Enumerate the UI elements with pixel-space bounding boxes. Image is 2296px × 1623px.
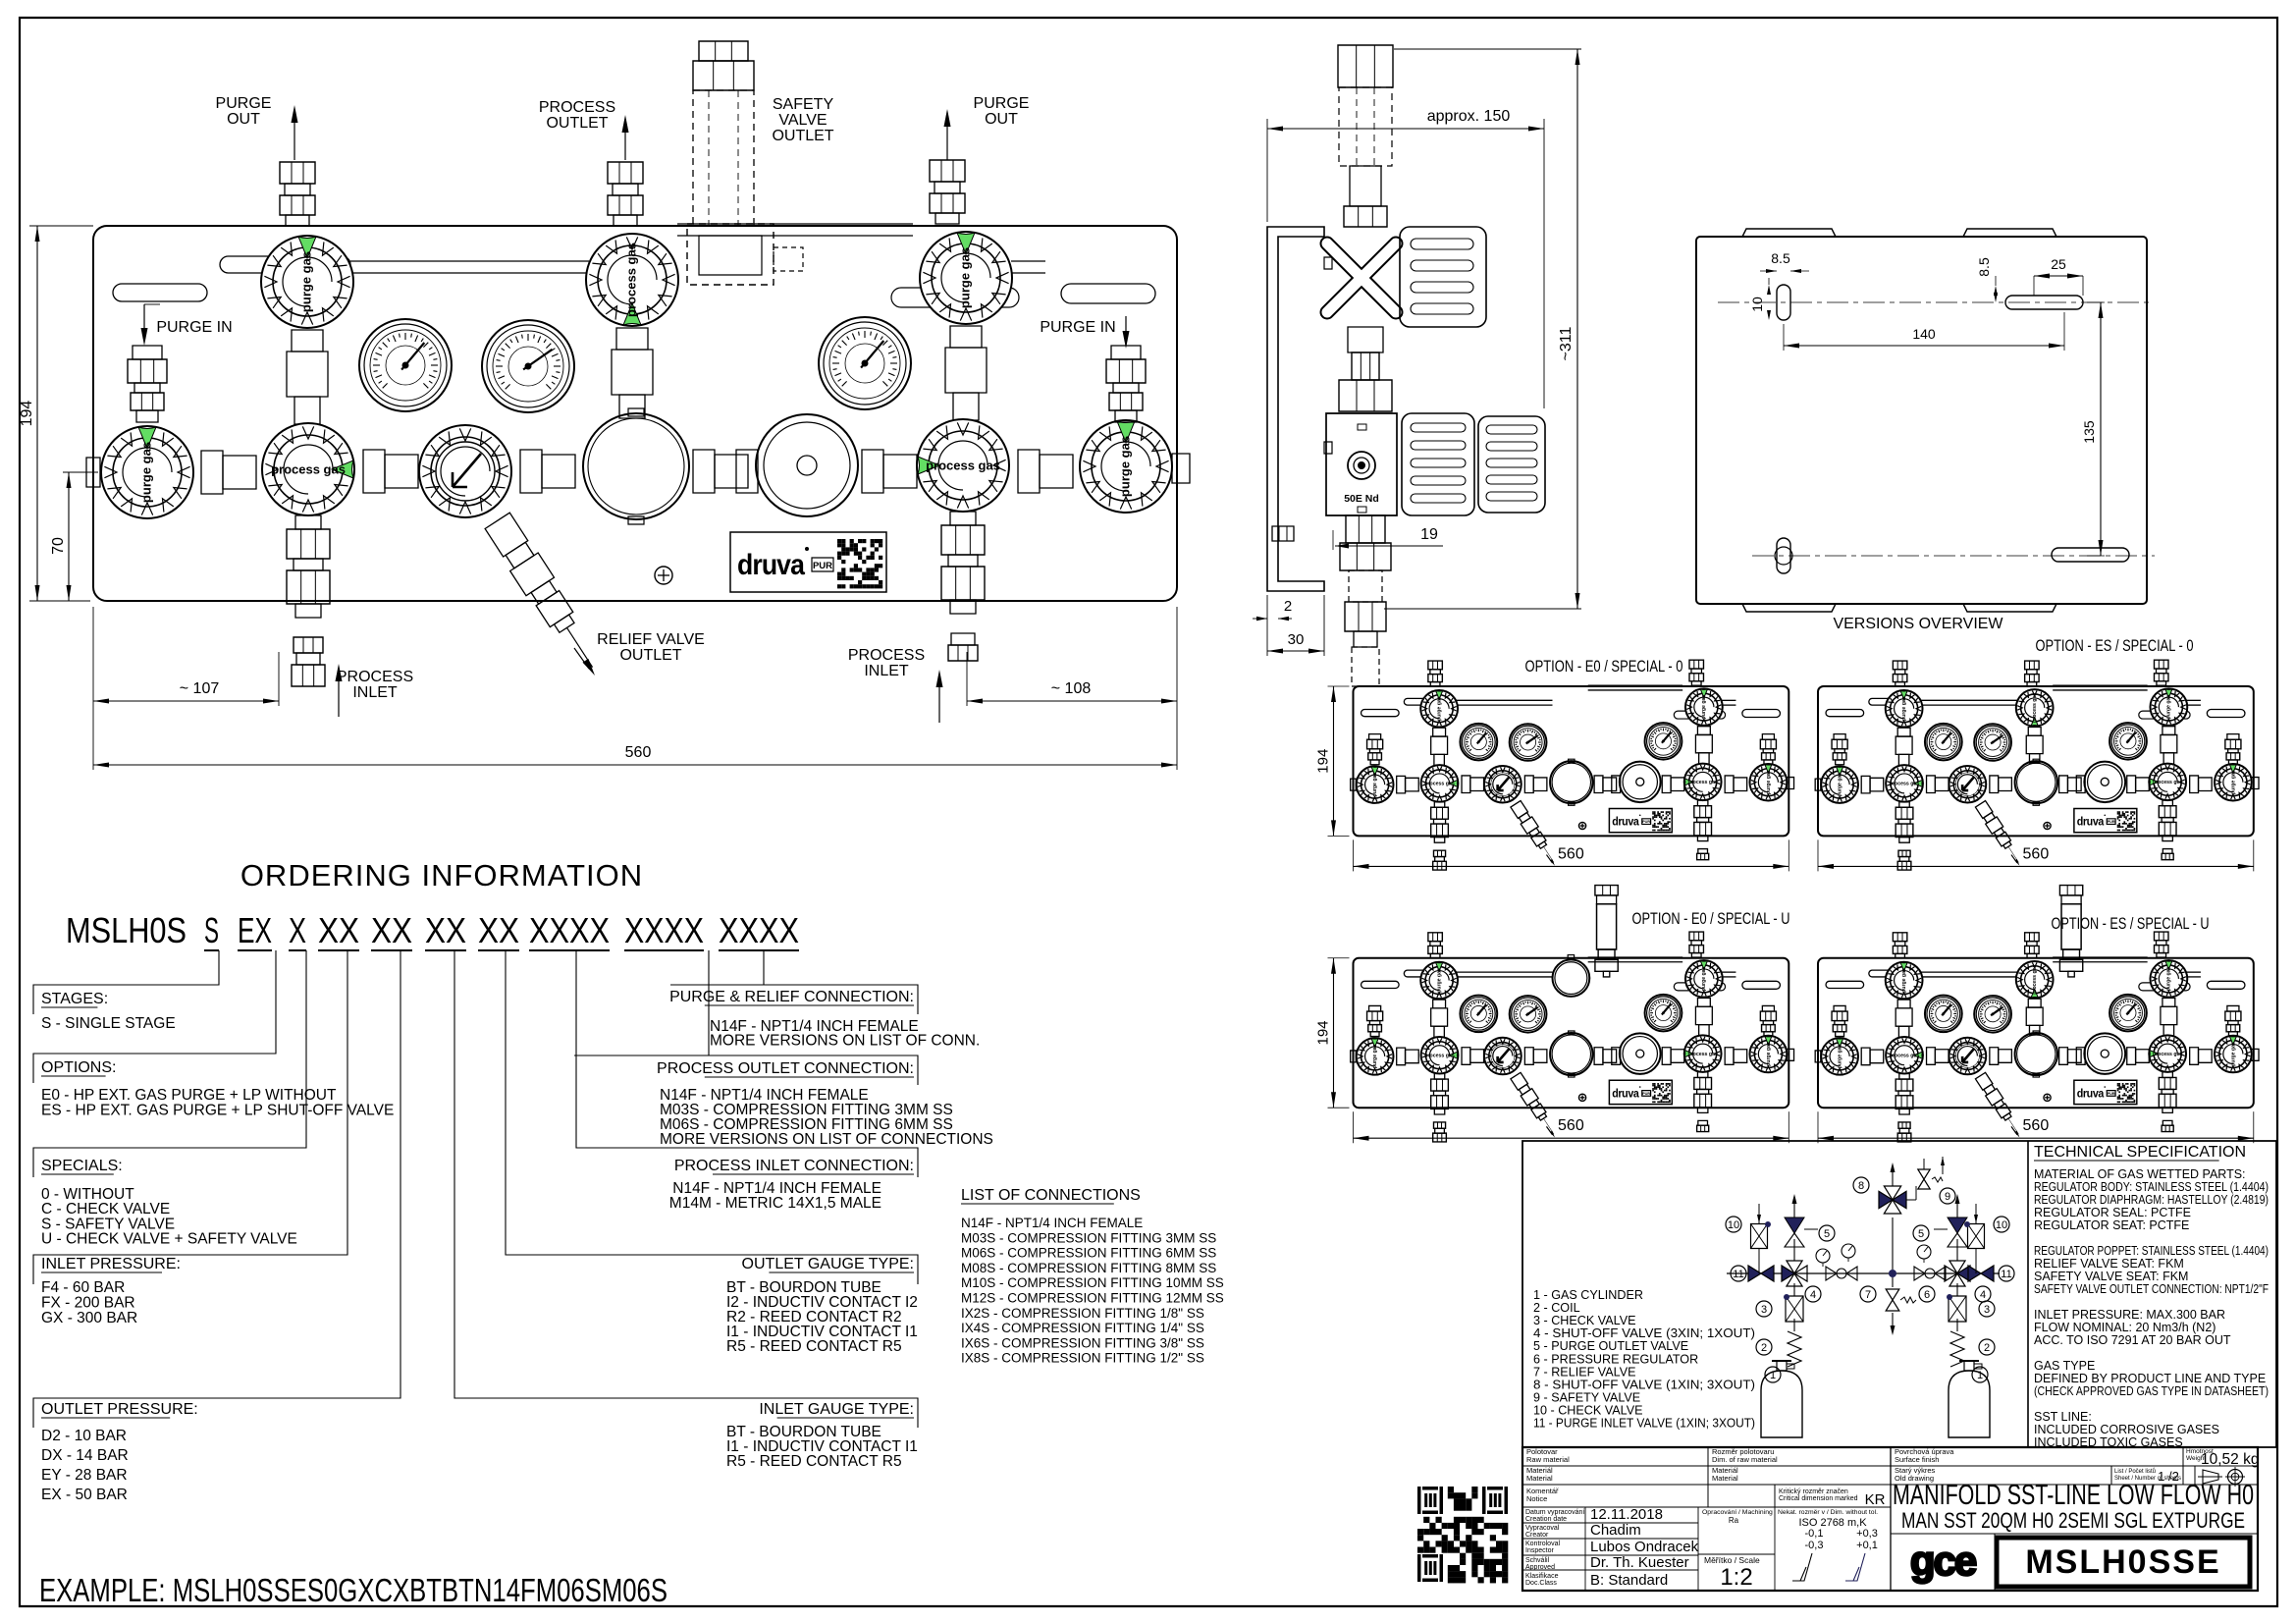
- svg-text:7: 7: [1865, 1289, 1871, 1301]
- svg-text:11: 11: [1733, 1269, 1743, 1280]
- svg-text:PURGE: PURGE: [974, 95, 1030, 112]
- svg-text:ORDERING INFORMATION: ORDERING INFORMATION: [240, 858, 643, 893]
- svg-text:OPTIONS:: OPTIONS:: [41, 1059, 116, 1076]
- svg-text:OUT: OUT: [227, 111, 260, 128]
- svg-text:3: 3: [1761, 1304, 1767, 1316]
- svg-text:Klasifikace: Klasifikace: [1525, 1573, 1559, 1580]
- svg-text:PROCESS INLET CONNECTION:: PROCESS INLET CONNECTION:: [674, 1158, 914, 1174]
- svg-text:ACC. TO ISO 7291 AT 20 BAR OUT: ACC. TO ISO 7291 AT 20 BAR OUT: [2034, 1333, 2231, 1347]
- svg-text:purge gas: purge gas: [298, 251, 313, 312]
- svg-text:4 - SHUT-OFF VALVE (3XIN; 1XOU: 4 - SHUT-OFF VALVE (3XIN; 1XOUT): [1533, 1326, 1755, 1340]
- svg-text:U - CHECK VALVE + SAFETY VALVE: U - CHECK VALVE + SAFETY VALVE: [41, 1231, 297, 1248]
- svg-text:(CHECK APPROVED GAS TYPE IN DA: (CHECK APPROVED GAS TYPE IN DATASHEET): [2034, 1384, 2269, 1398]
- svg-text:PURGE IN: PURGE IN: [156, 319, 232, 336]
- svg-text:Raw material: Raw material: [1526, 1455, 1570, 1464]
- svg-text:DX - 14 BAR: DX - 14 BAR: [41, 1447, 129, 1464]
- svg-text:30: 30: [1288, 631, 1305, 648]
- svg-text:EX: EX: [238, 910, 272, 950]
- svg-text:Notice: Notice: [1526, 1494, 1547, 1503]
- svg-text:OUTLET PRESSURE:: OUTLET PRESSURE:: [41, 1401, 198, 1418]
- svg-text:Dr. Th. Kuester: Dr. Th. Kuester: [1590, 1554, 1689, 1571]
- svg-text:3: 3: [1984, 1304, 1990, 1316]
- svg-text:SAFETY VALVE OUTLET CONNECTION: SAFETY VALVE OUTLET CONNECTION: NPT1/2"F: [2034, 1282, 2269, 1296]
- svg-text:XX: XX: [425, 910, 466, 950]
- svg-text:4: 4: [1980, 1289, 1986, 1301]
- svg-text:~311: ~311: [1558, 326, 1575, 360]
- svg-text:12.11.2018: 12.11.2018: [1590, 1506, 1663, 1523]
- svg-text:PROCESS: PROCESS: [848, 647, 925, 664]
- svg-text:Surface finish: Surface finish: [1895, 1455, 1939, 1464]
- svg-text:-0,3: -0,3: [1805, 1540, 1824, 1551]
- svg-text:IX2S - COMPRESSION FITTING 1/8: IX2S - COMPRESSION FITTING 1/8" SS: [961, 1306, 1204, 1321]
- svg-text:560: 560: [2023, 1117, 2050, 1134]
- svg-text:Kritický rozměr značen: Kritický rozměr značen: [1779, 1488, 1848, 1495]
- svg-text:XXXX: XXXX: [624, 910, 704, 950]
- svg-text:XXXX: XXXX: [719, 910, 799, 950]
- svg-text:Inspector: Inspector: [1525, 1547, 1554, 1554]
- svg-text:VALVE: VALVE: [778, 112, 827, 129]
- svg-text:approx. 150: approx. 150: [1427, 108, 1511, 125]
- svg-text:D2 - 10 BAR: D2 - 10 BAR: [41, 1428, 127, 1444]
- svg-text:194: 194: [19, 401, 35, 427]
- svg-text:Vypracoval: Vypracoval: [1525, 1525, 1560, 1532]
- svg-text:2: 2: [1984, 1342, 1990, 1354]
- svg-text:1 - GAS CYLINDER: 1 - GAS CYLINDER: [1533, 1288, 1643, 1302]
- svg-text:REGULATOR SEAL: PCTFE: REGULATOR SEAL: PCTFE: [2034, 1206, 2191, 1219]
- svg-text:KR: KR: [1865, 1491, 1886, 1508]
- svg-text:Lubos Ondracek: Lubos Ondracek: [1590, 1539, 1699, 1555]
- svg-text:140: 140: [1912, 326, 1936, 342]
- svg-text:INCLUDED CORROSIVE GASES: INCLUDED CORROSIVE GASES: [2034, 1423, 2219, 1436]
- svg-text:R5 - REED CONTACT R5: R5 - REED CONTACT R5: [726, 1338, 902, 1355]
- svg-text:PURGE & RELIEF CONNECTION:: PURGE & RELIEF CONNECTION:: [669, 989, 914, 1005]
- svg-text:S: S: [204, 910, 219, 950]
- svg-text:19: 19: [1420, 526, 1438, 543]
- svg-text:INLET GAUGE TYPE:: INLET GAUGE TYPE:: [759, 1401, 914, 1418]
- svg-text:DEFINED BY PRODUCT LINE AND TY: DEFINED BY PRODUCT LINE AND TYPE: [2034, 1372, 2266, 1385]
- svg-text:8.5: 8.5: [1976, 257, 1992, 277]
- svg-text:50E Nd: 50E Nd: [1344, 493, 1379, 505]
- svg-text:7 - RELIEF VALVE: 7 - RELIEF VALVE: [1533, 1365, 1636, 1379]
- svg-text:8.5: 8.5: [1771, 250, 1790, 266]
- svg-text:PROCESS: PROCESS: [337, 669, 413, 685]
- svg-text:purge gas: purge gas: [1117, 436, 1132, 497]
- svg-text:11 - PURGE INLET VALVE (1XIN;: 11 - PURGE INLET VALVE (1XIN; 3XOUT): [1533, 1417, 1755, 1431]
- svg-text:E0 - HP EXT. GAS PURGE + LP WI: E0 - HP EXT. GAS PURGE + LP WITHOUT: [41, 1087, 337, 1104]
- svg-text:OPTION - ES / SPECIAL - 0: OPTION - ES / SPECIAL - 0: [2036, 637, 2194, 655]
- svg-text:25: 25: [2051, 256, 2066, 272]
- svg-text:List / Počet listů: List / Počet listů: [2114, 1468, 2156, 1475]
- svg-text:11: 11: [2001, 1269, 2011, 1280]
- svg-text:IX8S - COMPRESSION FITTING 1/2: IX8S - COMPRESSION FITTING 1/2" SS: [961, 1351, 1204, 1366]
- svg-text:IX4S - COMPRESSION FITTING 1/4: IX4S - COMPRESSION FITTING 1/4" SS: [961, 1321, 1204, 1335]
- svg-text:PUR: PUR: [813, 561, 832, 571]
- svg-text:+0,3: +0,3: [1856, 1528, 1878, 1540]
- svg-text:Opracování / Machining: Opracování / Machining: [1702, 1509, 1773, 1516]
- svg-text:MAN SST 20QM H0 2SEMI SGL EXTP: MAN SST 20QM H0 2SEMI SGL EXTPURGE: [1901, 1508, 2245, 1533]
- svg-text:PURGE: PURGE: [216, 95, 272, 112]
- svg-text:Approved: Approved: [1525, 1564, 1555, 1571]
- svg-text:9: 9: [1945, 1191, 1950, 1203]
- svg-text:2: 2: [1761, 1342, 1767, 1354]
- svg-text:Chadim: Chadim: [1590, 1522, 1641, 1539]
- svg-text:REGULATOR DIAPHRAGM: HASTELLOY: REGULATOR DIAPHRAGM: HASTELLOY (2.4819): [2034, 1193, 2269, 1207]
- svg-text:purge gas: purge gas: [138, 442, 153, 503]
- svg-text:OUTLET: OUTLET: [772, 128, 833, 144]
- svg-text:3 - CHECK VALVE: 3 - CHECK VALVE: [1533, 1314, 1636, 1327]
- svg-text:XXXX: XXXX: [529, 910, 610, 950]
- svg-text:MORE VERSIONS ON LIST OF CONN.: MORE VERSIONS ON LIST OF CONN.: [710, 1033, 980, 1050]
- svg-text:~ 107: ~ 107: [180, 680, 220, 697]
- svg-text:MSLH0SSE: MSLH0SSE: [2025, 1543, 2220, 1581]
- svg-text:Material: Material: [1712, 1474, 1738, 1483]
- svg-text:STAGES:: STAGES:: [41, 991, 108, 1007]
- svg-text:REGULATOR POPPET: STAINLESS ST: REGULATOR POPPET: STAINLESS STEEL (1.440…: [2034, 1244, 2269, 1258]
- svg-text:PURGE IN: PURGE IN: [1040, 319, 1115, 336]
- svg-text:SST LINE:: SST LINE:: [2034, 1410, 2092, 1424]
- svg-text:8 - SHUT-OFF VALVE (1XIN; 3XOU: 8 - SHUT-OFF VALVE (1XIN; 3XOUT): [1533, 1378, 1755, 1391]
- svg-text:5: 5: [1918, 1228, 1924, 1240]
- svg-text:GX - 300 BAR: GX - 300 BAR: [41, 1310, 137, 1326]
- svg-text:+0,1: +0,1: [1856, 1540, 1878, 1551]
- svg-text:process gas: process gas: [926, 459, 1000, 473]
- svg-text:10,52 kg: 10,52 kg: [2201, 1451, 2259, 1468]
- svg-text:4: 4: [1810, 1289, 1816, 1301]
- svg-text:REGULATOR SEAT: PCTFE: REGULATOR SEAT: PCTFE: [2034, 1218, 2189, 1232]
- svg-text:SPECIALS:: SPECIALS:: [41, 1158, 123, 1174]
- svg-text:10 - CHECK VALVE: 10 - CHECK VALVE: [1533, 1403, 1643, 1417]
- svg-text:M08S - COMPRESSION FITTING 8MM: M08S - COMPRESSION FITTING 8MM SS: [961, 1261, 1216, 1275]
- svg-text:MSLH0S: MSLH0S: [66, 910, 187, 950]
- svg-text:560: 560: [1558, 845, 1584, 862]
- svg-text:M06S - COMPRESSION FITTING 6MM: M06S - COMPRESSION FITTING 6MM SS: [961, 1246, 1216, 1261]
- svg-text:INLET PRESSURE:: INLET PRESSURE:: [41, 1256, 181, 1272]
- svg-text:OPTION - E0 / SPECIAL - U: OPTION - E0 / SPECIAL - U: [1632, 910, 1790, 928]
- svg-text:X: X: [289, 910, 306, 950]
- svg-text:70: 70: [50, 537, 67, 555]
- svg-text:6 - PRESSURE REGULATOR: 6 - PRESSURE REGULATOR: [1533, 1352, 1698, 1366]
- svg-text:MORE VERSIONS ON LIST OF CONNE: MORE VERSIONS ON LIST OF CONNECTIONS: [660, 1131, 993, 1148]
- svg-text:Doc.Class: Doc.Class: [1525, 1580, 1557, 1587]
- svg-text:PROCESS OUTLET CONNECTION:: PROCESS OUTLET CONNECTION:: [657, 1060, 914, 1077]
- svg-text:5 - PURGE OUTLET VALVE: 5 - PURGE OUTLET VALVE: [1533, 1339, 1688, 1353]
- svg-text:INLET PRESSURE: MAX.300 BAR: INLET PRESSURE: MAX.300 BAR: [2034, 1308, 2225, 1322]
- svg-text:SAFETY: SAFETY: [773, 96, 834, 113]
- svg-text:560: 560: [1558, 1117, 1584, 1134]
- svg-text:9 - SAFETY VALVE: 9 - SAFETY VALVE: [1533, 1390, 1640, 1404]
- svg-text:XX: XX: [478, 910, 519, 950]
- svg-text:EXAMPLE: MSLH0SSES0GXCXBTBTN14: EXAMPLE: MSLH0SSES0GXCXBTBTN14FM06SM06S: [39, 1572, 667, 1608]
- svg-text:194: 194: [1314, 1020, 1331, 1045]
- svg-text:Material: Material: [1526, 1474, 1553, 1483]
- svg-text:1: 1: [1977, 1370, 1983, 1381]
- svg-text:INLET: INLET: [864, 663, 909, 679]
- svg-text:XX: XX: [371, 910, 412, 950]
- svg-text:194: 194: [1314, 749, 1331, 774]
- svg-text:8: 8: [1858, 1180, 1864, 1192]
- svg-text:2 - COIL: 2 - COIL: [1533, 1301, 1580, 1315]
- svg-text:RELIEF VALVE: RELIEF VALVE: [597, 631, 705, 648]
- svg-text:-0,1: -0,1: [1805, 1528, 1824, 1540]
- svg-text:INLET: INLET: [352, 684, 398, 701]
- svg-text:OPTION - E0 / SPECIAL - 0: OPTION - E0 / SPECIAL - 0: [1525, 658, 1683, 676]
- svg-text:5: 5: [1824, 1228, 1830, 1240]
- svg-text:Datum vypracování: Datum vypracování: [1525, 1509, 1584, 1516]
- svg-text:Nekat. rozměr v / Dim. without: Nekat. rozměr v / Dim. without tol.: [1778, 1509, 1878, 1516]
- svg-text:OUTLET: OUTLET: [546, 115, 608, 132]
- svg-text:ES - HP EXT. GAS PURGE + LP SH: ES - HP EXT. GAS PURGE + LP SHUT-OFF VAL…: [41, 1103, 394, 1119]
- svg-text:OUT: OUT: [985, 111, 1018, 128]
- svg-text:OPTION - ES / SPECIAL - U: OPTION - ES / SPECIAL - U: [2052, 915, 2210, 933]
- svg-text:10: 10: [1996, 1219, 2007, 1231]
- svg-text:process gas: process gas: [271, 462, 346, 477]
- svg-text:560: 560: [625, 744, 652, 761]
- svg-text:VERSIONS OVERVIEW: VERSIONS OVERVIEW: [1833, 616, 2003, 632]
- svg-text:druva: druva: [737, 549, 805, 581]
- svg-text:process gas: process gas: [623, 243, 638, 317]
- svg-text:EY - 28 BAR: EY - 28 BAR: [41, 1467, 128, 1484]
- svg-text:REGULATOR BODY: STAINLESS STEE: REGULATOR BODY: STAINLESS STEEL (1.4404): [2034, 1180, 2269, 1194]
- svg-text:MATERIAL OF GAS WETTED PARTS:: MATERIAL OF GAS WETTED PARTS:: [2034, 1167, 2246, 1181]
- svg-text:M12S - COMPRESSION FITTING 12M: M12S - COMPRESSION FITTING 12MM SS: [961, 1291, 1224, 1306]
- svg-text:purge gas: purge gas: [957, 247, 972, 308]
- svg-text:M03S - COMPRESSION FITTING 3MM: M03S - COMPRESSION FITTING 3MM SS: [961, 1230, 1216, 1245]
- svg-text:FLOW NOMINAL: 20 Nm3/h (N2): FLOW NOMINAL: 20 Nm3/h (N2): [2034, 1321, 2216, 1334]
- svg-text:OUTLET GAUGE TYPE:: OUTLET GAUGE TYPE:: [742, 1256, 914, 1272]
- svg-text:135: 135: [2081, 420, 2097, 444]
- svg-text:10: 10: [1728, 1219, 1739, 1231]
- svg-text:Creator: Creator: [1525, 1532, 1549, 1539]
- svg-text:Creation date: Creation date: [1525, 1516, 1567, 1523]
- svg-text:EX - 50 BAR: EX - 50 BAR: [41, 1487, 128, 1503]
- svg-text:M10S - COMPRESSION FITTING 10M: M10S - COMPRESSION FITTING 10MM SS: [961, 1275, 1224, 1290]
- svg-text:6: 6: [1924, 1289, 1930, 1301]
- svg-text:2: 2: [1284, 598, 1292, 615]
- svg-text:R5 - REED CONTACT R5: R5 - REED CONTACT R5: [726, 1453, 902, 1470]
- svg-text:PROCESS: PROCESS: [539, 99, 615, 116]
- svg-text:Ra: Ra: [1729, 1516, 1739, 1525]
- svg-text:OUTLET: OUTLET: [619, 647, 681, 664]
- svg-text:560: 560: [2023, 845, 2050, 862]
- svg-text:LIST OF CONNECTIONS: LIST OF CONNECTIONS: [961, 1187, 1141, 1204]
- svg-text:10: 10: [1749, 297, 1765, 312]
- svg-text:S - SINGLE STAGE: S - SINGLE STAGE: [41, 1015, 176, 1032]
- svg-text:~ 108: ~ 108: [1051, 680, 1092, 697]
- svg-text:XX: XX: [318, 910, 359, 950]
- svg-text:MANIFOLD SST-LINE LOW FLOW H0: MANIFOLD SST-LINE LOW FLOW H0: [1893, 1480, 2254, 1511]
- svg-text:SAFETY VALVE SEAT: FKM: SAFETY VALVE SEAT: FKM: [2034, 1270, 2188, 1283]
- svg-text:Schválil: Schválil: [1525, 1557, 1550, 1564]
- svg-text:GAS TYPE: GAS TYPE: [2034, 1359, 2095, 1373]
- svg-text:M14M - METRIC 14X1,5 MALE: M14M - METRIC 14X1,5 MALE: [669, 1195, 881, 1212]
- svg-text:IX6S - COMPRESSION FITTING 3/8: IX6S - COMPRESSION FITTING 3/8" SS: [961, 1335, 1204, 1350]
- svg-text:N14F - NPT1/4 INCH FEMALE: N14F - NPT1/4 INCH FEMALE: [961, 1216, 1143, 1230]
- svg-text:B: Standard: B: Standard: [1590, 1572, 1668, 1589]
- svg-text:1:2: 1:2: [1720, 1564, 1752, 1591]
- svg-text:RELIEF VALVE SEAT: FKM: RELIEF VALVE SEAT: FKM: [2034, 1257, 2184, 1271]
- svg-text:TECHNICAL SPECIFICATION: TECHNICAL SPECIFICATION: [2034, 1144, 2246, 1161]
- svg-text:Kontroloval: Kontroloval: [1525, 1541, 1560, 1547]
- svg-text:gce: gce: [1910, 1538, 1976, 1584]
- svg-text:1: 1: [1770, 1370, 1776, 1381]
- svg-text:Dim. of raw material: Dim. of raw material: [1712, 1455, 1778, 1464]
- svg-text:Critical dimension marked: Critical dimension marked: [1779, 1495, 1858, 1502]
